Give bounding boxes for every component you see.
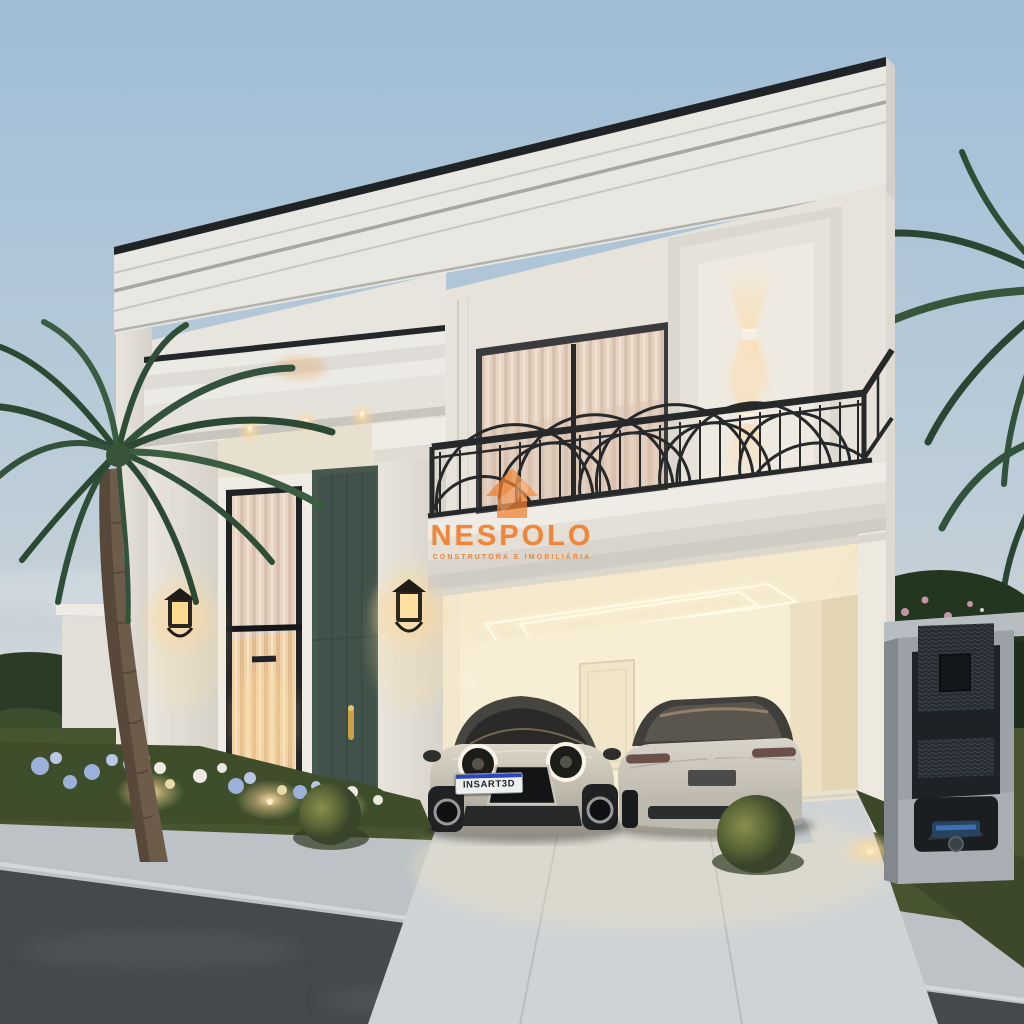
utility-enclosure <box>884 612 1024 884</box>
sedan-taillight-right <box>752 747 796 758</box>
mesh-panels <box>912 623 1000 799</box>
scene-svg <box>0 0 1024 1024</box>
garage-right-pillar <box>858 530 886 834</box>
door-handle <box>348 706 354 740</box>
sedan-taillight-left <box>626 753 670 764</box>
plate-text: INSART3D <box>456 777 522 792</box>
window-left <box>214 473 314 802</box>
lantern-right <box>366 568 454 656</box>
lantern-left <box>140 578 220 658</box>
architectural-render: NESPOLO CONSTRUTORA E IMOBILIÁRIA INSART… <box>0 0 1024 1024</box>
license-plate: INSART3D <box>455 772 524 795</box>
vent-window <box>940 654 970 691</box>
water-meter <box>914 796 998 852</box>
